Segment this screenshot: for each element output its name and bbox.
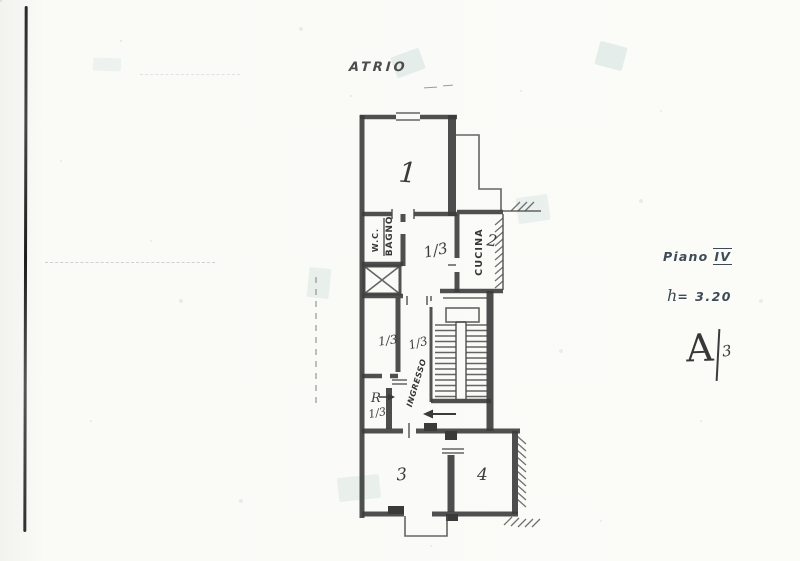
room4-number: 4 xyxy=(476,465,488,485)
wc-label: W.C. xyxy=(371,228,380,252)
stair-treads-right xyxy=(466,325,488,397)
room1-number: 1 xyxy=(398,156,418,190)
entrance-arrow xyxy=(423,410,456,419)
elevator-shaft xyxy=(364,266,400,294)
bathroom-label: BAGNO xyxy=(385,216,395,256)
kitchen-number: 2 xyxy=(485,230,499,250)
fraction-room-left: 1/3 xyxy=(377,332,398,349)
kitchen-label: CUCINA xyxy=(474,228,485,276)
party-wall-hatching xyxy=(495,202,540,527)
stair-treads-left xyxy=(435,325,456,397)
fraction-hall: 1/3 xyxy=(407,334,430,353)
plan-walls xyxy=(360,115,520,521)
wall-stub xyxy=(445,431,457,440)
fraction-r-room: 1/3 xyxy=(367,405,387,421)
floor-plan-drawing: 1 W.C. BAGNO CUCINA 2 1/3 1/3 1/3 1/3 R … xyxy=(0,0,800,561)
r-mark: R xyxy=(370,391,381,406)
hall-label: INGRESSO xyxy=(405,358,428,408)
wall-stub xyxy=(424,423,437,431)
wall-stub xyxy=(388,506,404,514)
fraction-corridor: 1/3 xyxy=(422,239,449,262)
room3-number: 3 xyxy=(395,465,408,486)
balcony-top-right-outline xyxy=(455,135,541,211)
balcony-bottom-outline xyxy=(405,516,447,536)
staircase xyxy=(435,298,488,400)
